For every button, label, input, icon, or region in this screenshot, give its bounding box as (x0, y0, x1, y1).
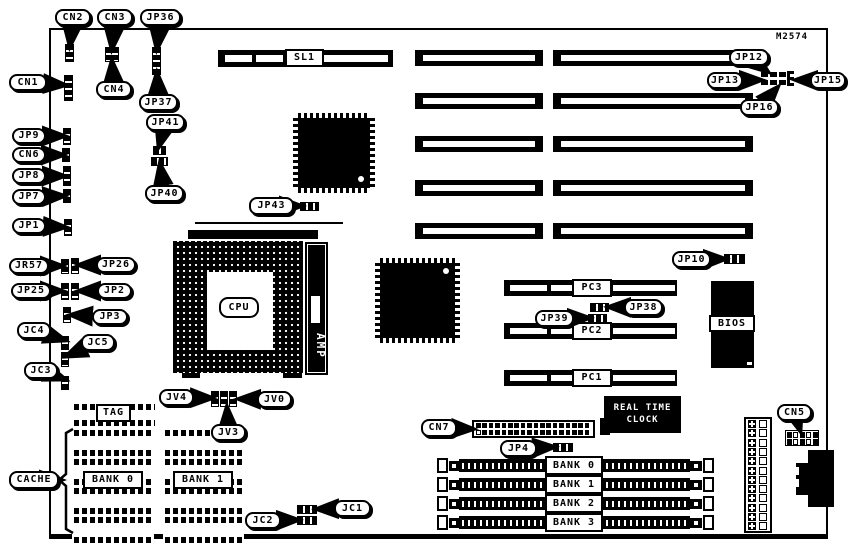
jumper-block (61, 336, 69, 350)
callout-jp7: JP7 (12, 189, 46, 205)
callout-jp8: JP8 (12, 168, 46, 184)
jumper-block (63, 189, 71, 203)
power-pin (748, 457, 756, 465)
cpu-socket-foot (283, 373, 302, 378)
callout-jp16: JP16 (740, 99, 779, 116)
simm-bank-label: BANK 0 (545, 456, 603, 475)
power-pin-hole (759, 448, 767, 456)
pci-slot-contact-stripe (510, 328, 547, 334)
pci-slot-contact-stripe (510, 285, 547, 291)
power-pin-hole (759, 522, 767, 530)
callout-jp25: JP25 (11, 283, 51, 299)
callout-jv4: JV4 (159, 389, 194, 406)
jumper-block (61, 283, 69, 300)
callout-jv0: JV0 (257, 391, 292, 408)
cn7-pin (534, 423, 539, 428)
callout-cn6: CN6 (12, 147, 46, 163)
real-time-clock-chip: REAL TIME CLOCK (604, 396, 681, 433)
callout-jp9: JP9 (12, 128, 46, 144)
board-part-number: M2574 (776, 32, 808, 42)
pci-slot-label-pc3: PC3 (572, 279, 612, 297)
jumper-block (553, 443, 573, 452)
power-pin (748, 485, 756, 493)
cn7-pin (495, 423, 500, 428)
simm-right-cap (703, 515, 714, 530)
power-pin-hole (759, 457, 767, 465)
cn7-pin (508, 423, 513, 428)
callout-jp10: JP10 (672, 251, 711, 268)
callout-jp37: JP37 (139, 94, 178, 111)
jumper-block (64, 75, 73, 101)
callout-jp13: JP13 (707, 72, 743, 89)
simm-left-cap (437, 515, 448, 530)
jumper-block (300, 202, 319, 211)
cn7-pin (559, 423, 564, 428)
callout-jp12: JP12 (729, 49, 769, 66)
callout-jp39: JP39 (535, 310, 574, 327)
cpu-socket-foot (182, 373, 200, 378)
qfp-chip-pin1-dot (443, 268, 449, 274)
qfp-chip-pins (455, 263, 460, 338)
jumper-block (63, 307, 71, 323)
jumper-matrix-cell (779, 72, 786, 77)
rtc-label-line1: REAL TIME (614, 403, 672, 414)
jumper-block (61, 259, 69, 274)
cache-bank0-label: BANK 0 (83, 471, 143, 489)
simm-right-latch-notch (694, 483, 698, 487)
motherboard-diagram: M2574 CPU AMP BIOS REAL TIME CLOCK TAG B… (0, 0, 853, 547)
pci-slot-contact-stripe (551, 285, 573, 291)
sl1-slot-contact-stripe (323, 55, 388, 62)
cn5-pin (813, 432, 818, 438)
cn7-pin (578, 430, 583, 435)
callout-cn2: CN2 (55, 9, 91, 26)
cpu-label: CPU (219, 297, 259, 318)
jumper-block (105, 47, 119, 62)
simm-right-cap (703, 458, 714, 473)
jumper-block (65, 44, 74, 62)
jumper-block (724, 254, 745, 264)
callout-jp40: JP40 (145, 185, 184, 202)
jumper-block (63, 128, 71, 145)
cn5-pin (806, 432, 811, 438)
pci-slot-contact-stripe (551, 375, 573, 381)
jumper-matrix-cell (761, 72, 768, 77)
callout-cn4: CN4 (96, 81, 132, 98)
simm-left-cap (437, 496, 448, 511)
cn7-pin (578, 423, 583, 428)
pci-slot-contact-stripe (551, 328, 573, 334)
cn7-pin (572, 430, 577, 435)
jumper-matrix-cell (770, 80, 777, 85)
simm-bank-label: BANK 3 (545, 513, 603, 532)
cn7-pin (572, 423, 577, 428)
cn5-pin (806, 439, 811, 445)
callout-jp1: JP1 (12, 218, 46, 234)
rtc-label-line2: CLOCK (626, 415, 658, 426)
cn7-pin (566, 423, 571, 428)
power-pin-hole (759, 467, 767, 475)
cn7-pin (566, 430, 571, 435)
simm-left-cap (437, 477, 448, 492)
cache-dip-chip (72, 487, 154, 515)
isa-slot-contact-stripe (561, 98, 745, 104)
isa-slot-contact-stripe (561, 141, 745, 147)
cn7-pin (521, 423, 526, 428)
cn5-pin (793, 432, 798, 438)
power-pin (748, 513, 756, 521)
cn7-pin (502, 430, 507, 435)
jumper-matrix-bracket-notch (790, 80, 794, 83)
jumper-matrix-cell (779, 80, 786, 85)
jumper-block (62, 148, 70, 162)
cache-dip-chip (72, 429, 154, 457)
isa-slot-contact-stripe (561, 185, 745, 191)
jumper-block (64, 219, 72, 236)
cpu-socket-top-line (195, 222, 343, 224)
callout-jc5: JC5 (81, 334, 115, 351)
keyboard-connector-notch (794, 479, 799, 487)
jumper-block (229, 391, 237, 407)
pci-slot-label-pc2: PC2 (572, 322, 612, 340)
pci-slot-contact-stripe (510, 375, 547, 381)
isa-slot-contact-stripe (561, 228, 745, 234)
isa-slot-contact-stripe (423, 55, 535, 61)
isa-slot-contact-stripe (423, 98, 535, 104)
qfp-chip (380, 263, 455, 338)
pci-slot-label-pc1: PC1 (572, 369, 612, 387)
jumper-matrix-bracket-notch (790, 74, 794, 77)
jumper-block (297, 505, 317, 514)
callout-jp36: JP36 (140, 9, 181, 26)
callout-cache: CACHE (9, 471, 59, 489)
cn7-pin (553, 430, 558, 435)
callout-jp26: JP26 (96, 257, 136, 273)
cn7-pin (521, 430, 526, 435)
cn7-pin (489, 430, 494, 435)
amp-label: AMP (306, 318, 327, 373)
jumper-block (63, 166, 71, 186)
cn7-pin (540, 423, 545, 428)
cn7-pin (534, 430, 539, 435)
power-pin (748, 494, 756, 502)
sl1-slot-label: SL1 (285, 49, 324, 67)
cn7-pin (585, 430, 590, 435)
jumper-block (220, 391, 228, 407)
cn5-pin (787, 439, 792, 445)
cn7-pin (514, 423, 519, 428)
jumper-block (153, 146, 166, 155)
jumper-block (61, 352, 69, 367)
cn5-pin (793, 439, 798, 445)
keyboard-connector-notch (794, 467, 799, 475)
jumper-block (151, 157, 168, 166)
power-pin-hole (759, 485, 767, 493)
power-pin-hole (759, 513, 767, 521)
callout-jc1: JC1 (334, 500, 371, 517)
cn7-pin (527, 423, 532, 428)
cn7-pin (540, 430, 545, 435)
callout-jr57: JR57 (9, 258, 49, 274)
jumper-block (71, 283, 79, 300)
simm-left-cap (437, 458, 448, 473)
cn7-pin (476, 423, 481, 428)
power-pin-hole (759, 494, 767, 502)
simm-left-latch-notch (452, 464, 456, 468)
power-pin (748, 429, 756, 437)
callout-jp41: JP41 (146, 114, 185, 131)
cn7-pin (553, 423, 558, 428)
jumper-matrix-cell (761, 80, 768, 85)
power-pin (748, 522, 756, 530)
cn7-pin (527, 430, 532, 435)
power-pin-hole (759, 420, 767, 428)
tag-ram-label: TAG (96, 404, 131, 422)
pci-slot-contact-stripe (613, 328, 675, 334)
isa-slot-contact-stripe (423, 228, 535, 234)
callout-jp3: JP3 (92, 309, 128, 325)
cn7-pin (559, 430, 564, 435)
jumper-block (211, 391, 219, 407)
callout-cn3: CN3 (97, 9, 133, 26)
power-pin (748, 476, 756, 484)
callout-cn5: CN5 (777, 404, 812, 421)
callout-jp4: JP4 (500, 440, 537, 457)
cn7-pin (514, 430, 519, 435)
cn7-pin (482, 423, 487, 428)
power-pin (748, 439, 756, 447)
pci-slot-contact-stripe (613, 285, 675, 291)
jumper-block (61, 376, 69, 390)
cache-dip-chip (72, 516, 154, 544)
qfp-chip-pins (380, 338, 455, 343)
cn5-pin (800, 439, 805, 445)
power-pin-hole (759, 504, 767, 512)
callout-jp15: JP15 (810, 72, 846, 89)
cn7-pin (476, 430, 481, 435)
cn5-pin (787, 432, 792, 438)
isa-slot-contact-stripe (423, 141, 535, 147)
cn7-pin (585, 423, 590, 428)
callout-jv3: JV3 (211, 424, 246, 441)
simm-left-latch-notch (452, 521, 456, 525)
cn7-pin (489, 423, 494, 428)
callout-cn1: CN1 (9, 74, 47, 91)
sl1-slot-contact-stripe (256, 55, 283, 62)
callout-cn7: CN7 (421, 419, 457, 437)
power-pin-hole (759, 476, 767, 484)
simm-right-cap (703, 477, 714, 492)
cn7-pin (546, 430, 551, 435)
simm-bank-label: BANK 2 (545, 494, 603, 513)
cn7-pin (508, 430, 513, 435)
pci-slot-contact-stripe (613, 375, 675, 381)
cn7-pin (546, 423, 551, 428)
jumper-block (590, 303, 609, 312)
jumper-block (297, 516, 317, 525)
power-pin (748, 504, 756, 512)
callout-jc2: JC2 (245, 512, 281, 529)
isa-slot-contact-stripe (561, 55, 745, 61)
simm-right-latch-notch (694, 521, 698, 525)
simm-bank-label: BANK 1 (545, 475, 603, 494)
qfp-chip-pin1-dot (358, 176, 364, 182)
cpu-socket-lever (188, 230, 318, 239)
callout-jc3: JC3 (24, 362, 58, 379)
simm-right-latch-notch (694, 464, 698, 468)
callout-jp2: JP2 (97, 283, 132, 299)
cache-dip-chip (163, 516, 244, 544)
power-pin-hole (759, 439, 767, 447)
cn7-pin (482, 430, 487, 435)
keyboard-connector (808, 450, 834, 507)
qfp-chip-pins (298, 188, 370, 193)
power-pin (748, 467, 756, 475)
simm-left-latch-notch (452, 502, 456, 506)
jumper-block (71, 258, 79, 274)
power-pin (748, 420, 756, 428)
sl1-slot-contact-stripe (225, 55, 252, 62)
callout-jc4: JC4 (17, 322, 51, 339)
callout-jp43: JP43 (249, 197, 294, 215)
jumper-matrix-cell (770, 72, 777, 77)
cn5-pin (813, 439, 818, 445)
cache-dip-chip (163, 487, 244, 515)
callout-jp38: JP38 (624, 299, 663, 316)
simm-right-latch-notch (694, 502, 698, 506)
power-pin-hole (759, 429, 767, 437)
bios-chip-notch (747, 362, 752, 365)
cn7-pin (502, 423, 507, 428)
cache-bank1-label: BANK 1 (173, 471, 233, 489)
cn7-pin (495, 430, 500, 435)
bios-label: BIOS (709, 315, 755, 332)
qfp-chip-pins (370, 118, 375, 188)
simm-right-cap (703, 496, 714, 511)
power-pin (748, 448, 756, 456)
simm-left-latch-notch (452, 483, 456, 487)
isa-slot-contact-stripe (423, 185, 535, 191)
jumper-block (152, 47, 161, 75)
cn5-pin (800, 432, 805, 438)
